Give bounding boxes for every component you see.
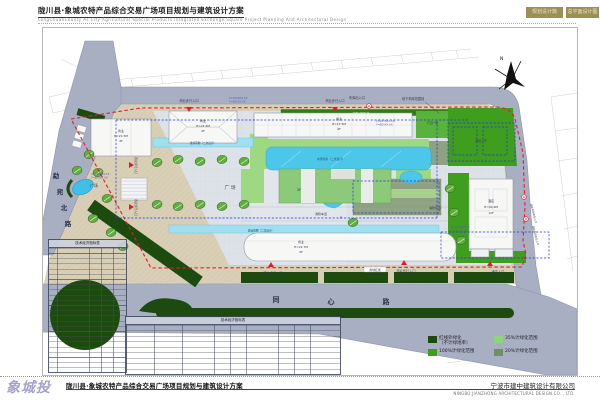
- drawing-page: 陇川县·象城农特产品综合交易广场项目规划与建筑设计方案 LongChuanCou…: [0, 0, 600, 400]
- entry-label: 商业步行入口: [134, 199, 138, 216]
- bike-parking-label: 非机动停车位: [353, 111, 370, 115]
- table-grid: [126, 325, 340, 374]
- fountain-pool: [266, 147, 431, 170]
- legend-swatch-lightgreen: [494, 336, 503, 343]
- entry-label: 商业步行入口: [134, 157, 138, 174]
- entry-label: 商业步行入口: [263, 271, 282, 276]
- bldg-d-label: 2F: [297, 188, 301, 192]
- legend-label: 100%计绿化范围: [439, 349, 474, 354]
- canopy-label: 玻璃雨棚（二次设计）: [248, 229, 274, 233]
- svg-text:H=21.5M: H=21.5M: [114, 134, 128, 138]
- canopy-label: 玻璃雨棚（二次设计）: [190, 141, 216, 145]
- bldg-a-label: 商业: [118, 128, 124, 133]
- svg-text:H=22.7M: H=22.7M: [294, 245, 308, 249]
- pool-label: 水景喷泉（二次设计）: [317, 157, 345, 161]
- table-title: 技术经济指标表: [126, 317, 340, 325]
- commercial-2f-label: 商业 2F: [475, 138, 486, 143]
- garage-entry-label: 车库出入口: [349, 95, 365, 100]
- svg-text:Y=503XX.XX: Y=503XX.XX: [451, 228, 468, 232]
- sheet-title-en: LongChuanCounty As City Agricultural Spe…: [38, 17, 347, 22]
- building-hotel: [469, 179, 513, 257]
- economic-indicators-table-2: 技术经济指标表: [125, 316, 341, 375]
- plaza-label: 广场: [90, 182, 98, 188]
- footer-divider: [0, 376, 600, 377]
- entry-label: 商业步行入口: [179, 98, 198, 103]
- hotel-label: 酒店: [488, 198, 494, 203]
- table-grid: [49, 248, 126, 372]
- greening-legend: 红线外绿化（不计绿地率） 35%计绿化范围 100%计绿化范围 20%计绿化范围: [428, 336, 560, 359]
- bldg-b-label: 商业: [200, 118, 206, 123]
- legend-item: 100%计绿化范围: [428, 349, 494, 356]
- table-title: 技术经济指标表: [49, 240, 126, 248]
- company-logo: 象城投资: [6, 378, 64, 400]
- svg-text:4F: 4F: [337, 127, 341, 131]
- legend-swatch-darkgreen: [428, 336, 437, 343]
- bldg-e-label: 商业: [298, 239, 304, 244]
- entry-label: 商业步行入口: [325, 98, 344, 103]
- svg-text:H=21.5M: H=21.5M: [196, 124, 210, 128]
- hotel-entry-label: 酒店入口: [492, 269, 505, 274]
- road-west-char: 勐: [53, 171, 60, 180]
- legend-label: 35%计绿化范围: [505, 336, 538, 341]
- garage-line-label: 地下车库范围线: [402, 96, 425, 101]
- svg-text:4F: 4F: [119, 139, 123, 143]
- building-commercial-e: [244, 233, 456, 261]
- road-south-char: 心: [328, 297, 335, 306]
- legend-swatch-green: [428, 349, 437, 356]
- plaza-stairs: [121, 178, 147, 200]
- svg-text:Y=503XX.XX: Y=503XX.XX: [91, 175, 108, 179]
- canopy-south: [169, 225, 439, 233]
- tab-master-plan[interactable]: 总平面设计图: [566, 7, 599, 18]
- hotel-south-green: [456, 251, 526, 263]
- design-company: 宁波市建中建筑设计有限公司: [340, 380, 575, 390]
- design-company-en: NINGBO JIANZHONG ARCHITECTURAL DESIGN CO…: [340, 391, 575, 396]
- svg-text:Y=503XX.XX: Y=503XX.XX: [229, 99, 246, 103]
- svg-text:4F: 4F: [201, 129, 205, 133]
- north-arrow-icon: N: [495, 56, 525, 90]
- red-line-label: 用地红线: [369, 268, 380, 272]
- sunken-plaza-label: 下沉广场: [426, 120, 438, 125]
- legend-swatch-graygreen: [494, 349, 503, 356]
- north-label: N: [500, 56, 503, 62]
- legend-item: 红线外绿化（不计绿地率）: [428, 336, 494, 346]
- svg-text:H=17.5M: H=17.5M: [332, 122, 346, 126]
- road-south-char: 同: [273, 296, 280, 304]
- svg-text:12F: 12F: [488, 211, 494, 215]
- tab-planning-section[interactable]: 规划设计篇: [526, 7, 563, 18]
- entry-label: 商业步行入口: [396, 269, 415, 274]
- legend-label: 20%计绿化范围: [505, 349, 538, 354]
- bldg-c-label: 商业: [336, 116, 342, 121]
- road-west-char: 北: [61, 203, 68, 212]
- fire-loop-label: 消防环道: [429, 205, 441, 210]
- svg-text:4F: 4F: [299, 250, 303, 254]
- economic-indicators-table: 技术经济指标表: [48, 239, 127, 373]
- svg-text:H=49.9M: H=49.9M: [484, 205, 498, 209]
- svg-text:Y=503XX.XX: Y=503XX.XX: [376, 122, 393, 126]
- building-commercial-d-roof: [279, 169, 391, 203]
- legend-item: 20%计绿化范围: [494, 349, 560, 356]
- northeast-green: [448, 108, 517, 166]
- parking-p-label: P: [340, 216, 342, 220]
- fire-lane-label: 消防车道: [315, 211, 327, 216]
- road-south-char: 路: [383, 297, 391, 306]
- road-west-char: 宛: [56, 187, 64, 196]
- road-west-char: 路: [65, 219, 72, 228]
- header-divider: [38, 23, 576, 24]
- plaza-label: 广场: [225, 184, 238, 191]
- legend-item: 35%计绿化范围: [494, 336, 560, 346]
